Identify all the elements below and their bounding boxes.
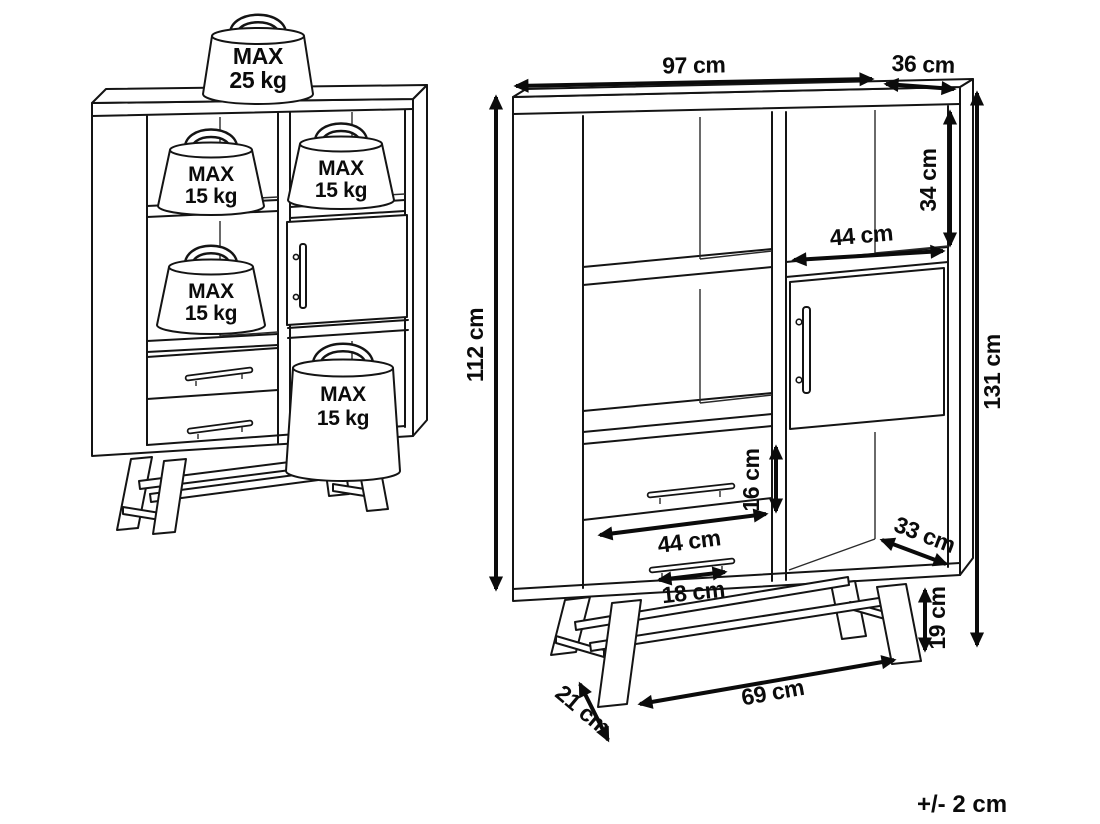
- weight-top: MAX 25 kg: [203, 19, 313, 105]
- weight-max-label: MAX: [318, 157, 364, 180]
- dim-depth-label: 36 cm: [891, 50, 955, 78]
- weight-max-label: MAX: [320, 383, 366, 406]
- weight-rim: [212, 28, 304, 44]
- dim-total-width-label: 97 cm: [662, 51, 726, 78]
- door-panel: [790, 268, 944, 429]
- door-handle-nub-top: [293, 254, 298, 259]
- weight-value-label: 15 kg: [185, 302, 237, 325]
- dim-top-opening-height-label: 34 cm: [915, 148, 941, 211]
- leg-front-right: [877, 584, 921, 664]
- weight-rim: [169, 260, 253, 275]
- dim-body-height-label: 112 cm: [462, 308, 488, 382]
- diagram-canvas: MAX 25 kg MAX 15 kg MAX 15 kg MAX: [0, 0, 1100, 824]
- weight-value-label: 15 kg: [185, 185, 237, 208]
- dim-leg-height: 19 cm: [924, 586, 950, 650]
- weight-max-label: MAX: [188, 280, 234, 303]
- dim-total-height-label: 131 cm: [979, 334, 1005, 410]
- weight-rim: [300, 137, 382, 152]
- weight-lower-right: MAX 15 kg: [286, 348, 400, 482]
- leg-front-left: [598, 600, 641, 707]
- dim-drawer-height-label: 16 cm: [738, 448, 764, 511]
- weight-value-label: 15 kg: [317, 407, 369, 430]
- dim-leg-span-width-label: 69 cm: [739, 674, 806, 711]
- door-handle: [803, 307, 810, 393]
- weight-rim: [293, 360, 393, 377]
- door-handle-nub-top: [796, 319, 802, 325]
- dim-upper-opening-width-label: 44 cm: [829, 219, 894, 250]
- leg-rear-left: [117, 457, 152, 530]
- weight-value-label: 25 kg: [229, 67, 286, 93]
- door-handle-nub-bottom: [293, 294, 298, 299]
- door-handle: [300, 244, 306, 308]
- door-handle-nub-bottom: [796, 377, 802, 383]
- leg-front-left: [153, 459, 186, 534]
- weight-max-label: MAX: [188, 163, 234, 186]
- weight-capacity-drawing: MAX 25 kg MAX 15 kg MAX 15 kg MAX: [92, 19, 427, 535]
- cabinet-carcass-right: [513, 79, 973, 707]
- weight-max-label: MAX: [233, 43, 284, 69]
- dim-leg-height-label: 19 cm: [924, 586, 950, 649]
- weight-rim: [170, 143, 252, 158]
- dimension-drawing: 97 cm 36 cm 112 cm 131 cm 34 cm 44 cm 16…: [462, 50, 1005, 740]
- cabinet-side-face: [960, 79, 973, 575]
- dim-total-height: 131 cm: [977, 93, 1005, 645]
- dim-body-height: 112 cm: [462, 97, 496, 589]
- tolerance-note: +/- 2 cm: [917, 791, 1007, 818]
- dim-total-width: 97 cm: [516, 51, 872, 86]
- dim-leg-span-width: 69 cm: [640, 660, 894, 710]
- furniture-technical-diagram: MAX 25 kg MAX 15 kg MAX 15 kg MAX: [0, 0, 1100, 824]
- weight-value-label: 15 kg: [315, 179, 367, 202]
- cabinet-side-face: [413, 85, 427, 436]
